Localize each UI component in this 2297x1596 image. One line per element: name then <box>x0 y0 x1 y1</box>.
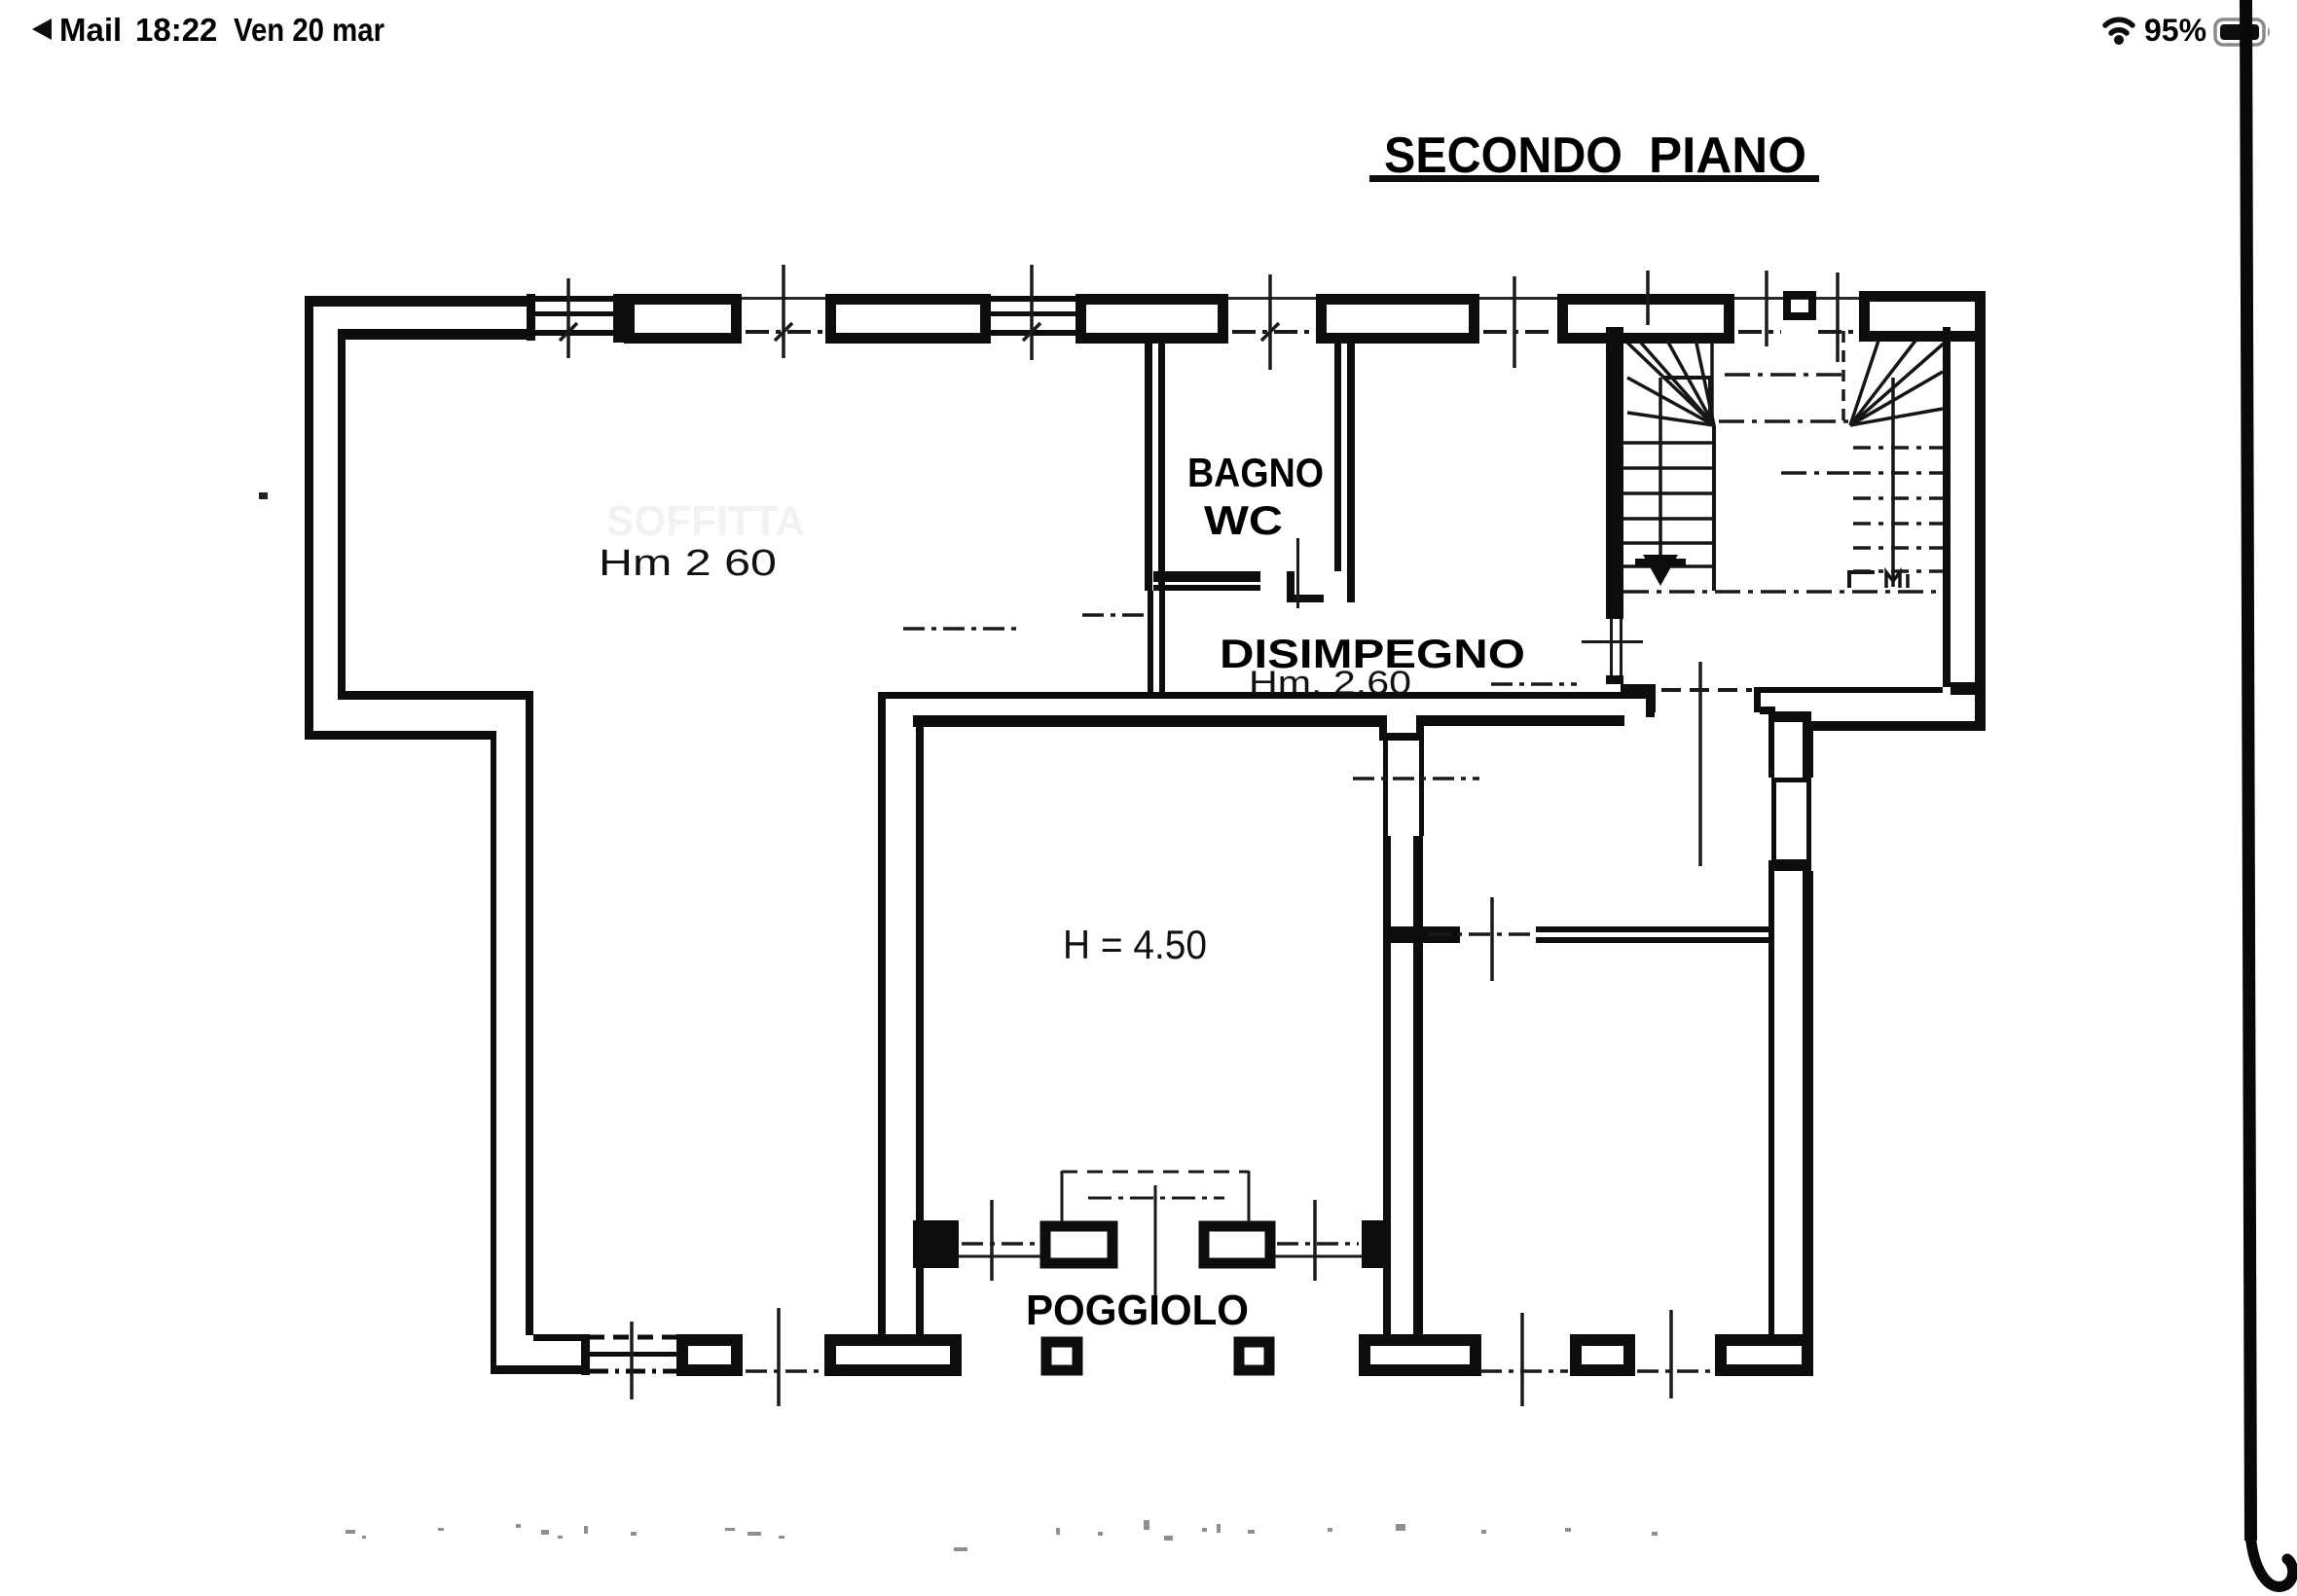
svg-text:95%: 95% <box>2144 13 2206 48</box>
svg-text:18:22: 18:22 <box>135 12 217 48</box>
svg-text:Hm 2 60: Hm 2 60 <box>599 543 777 584</box>
svg-text:BAGNO: BAGNO <box>1187 450 1324 495</box>
svg-text:H = 4.50: H = 4.50 <box>1063 922 1207 967</box>
svg-text:Ven 20 mar: Ven 20 mar <box>234 12 384 48</box>
svg-text:WC: WC <box>1204 497 1283 543</box>
svg-text:SOFFITTA: SOFFITTA <box>606 497 805 545</box>
svg-text:Hm. 2.60: Hm. 2.60 <box>1249 665 1411 702</box>
svg-text:Mail: Mail <box>59 12 122 48</box>
svg-text:POGGIOLO: POGGIOLO <box>1026 1287 1249 1334</box>
